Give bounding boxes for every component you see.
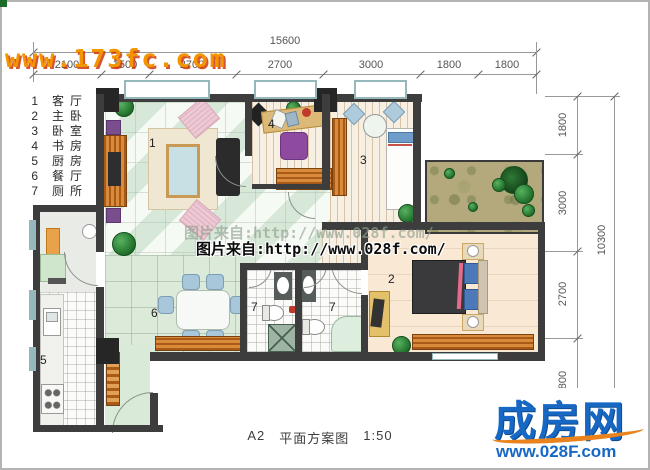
- logo-site: www.028F.com: [496, 442, 616, 462]
- wall-study-bottom: [252, 184, 330, 189]
- ceiling-fan: [82, 224, 97, 239]
- dining-chair: [158, 296, 174, 314]
- dining-chair: [206, 274, 224, 290]
- legend-label: 餐厅: [52, 169, 88, 184]
- room-label-master: 2: [388, 272, 395, 286]
- legend-row: 7厕所: [28, 184, 88, 199]
- room-label-kitchen: 5: [40, 353, 47, 367]
- study-chair: [280, 132, 308, 160]
- bedroom2-blanket-line: [388, 144, 412, 146]
- room-label-living: 1: [149, 136, 156, 150]
- dim-top-seg-3: 2700: [258, 59, 302, 71]
- plant-living-2: [112, 232, 136, 256]
- kitchen-sink-basin: [46, 312, 58, 322]
- terrace-plant-3: [492, 178, 506, 192]
- room-label-dining: 6: [151, 306, 158, 320]
- coffee-table: [166, 144, 200, 198]
- wall-bath-divider: [295, 263, 302, 359]
- legend-num: 2: [28, 109, 38, 124]
- wall-entry-stub: [150, 393, 158, 432]
- toilet-left-tank: [262, 305, 270, 321]
- room-label-study: 4: [268, 117, 275, 131]
- room-label-bath-right: 7: [329, 300, 336, 314]
- bedroom2-pillow: [388, 132, 414, 143]
- legend-label: 卧室: [52, 124, 88, 139]
- wall-bedroom2-left: [322, 94, 330, 190]
- legend-num: 7: [28, 184, 38, 199]
- legend-label: 书房: [52, 139, 88, 154]
- logo: 成房网 www.028F.com: [492, 388, 648, 466]
- dim-top-seg-line: [33, 74, 537, 75]
- drawing-code: A2: [247, 428, 265, 447]
- lamp-1: [467, 245, 479, 257]
- speaker-bottom: [106, 208, 121, 223]
- window-kitchen-1: [29, 290, 36, 320]
- legend-label: 主卧: [52, 109, 88, 124]
- utility-shelf: [48, 278, 66, 284]
- dim-top-seg-6: 1800: [485, 59, 529, 71]
- legend-label: 客厅: [52, 94, 88, 109]
- dining-table: [176, 290, 230, 330]
- legend-row: 2主卧: [28, 109, 88, 124]
- legend-row: 6餐厅: [28, 169, 88, 184]
- legend-num: 1: [28, 94, 38, 109]
- room-label-bath-left: 7: [251, 300, 258, 314]
- dining-chair: [182, 274, 200, 290]
- wall-master-left-b: [361, 295, 368, 355]
- utility-mat: [46, 228, 60, 256]
- window-utility: [29, 220, 36, 250]
- wall-master-right: [538, 222, 545, 361]
- wall-kitchen-right-a: [96, 205, 104, 252]
- window-kitchen-2: [29, 347, 36, 371]
- master-dresser: [412, 334, 534, 350]
- legend-row: 3卧室: [28, 124, 88, 139]
- legend-num: 5: [28, 154, 38, 169]
- lamp-2: [467, 316, 479, 328]
- sideboard: [155, 336, 243, 351]
- dim-right-seg-1: 3000: [557, 181, 569, 225]
- bedroom2-table: [363, 114, 387, 138]
- dim-top-seg-5: 1800: [427, 59, 471, 71]
- ext-line: [536, 42, 537, 94]
- dim-right-total-line: [614, 96, 615, 422]
- legend-row: 4书房: [28, 139, 88, 154]
- toilet-right-tank: [302, 319, 310, 335]
- desk-pot: [302, 108, 311, 117]
- legend-label: 厕所: [52, 184, 88, 199]
- room-label-bedroom2: 3: [360, 153, 367, 167]
- wall-bath-top: [240, 263, 368, 270]
- legend-num: 3: [28, 124, 38, 139]
- master-pillow-2: [464, 289, 479, 310]
- bathtub: [331, 316, 363, 352]
- dim-right-seg-line: [577, 96, 578, 422]
- bay-window-living: [124, 80, 210, 99]
- ext-line: [545, 96, 620, 97]
- legend-num: 4: [28, 139, 38, 154]
- terrace-plant-5: [468, 202, 478, 212]
- bay-window-bedroom2: [354, 80, 407, 99]
- bay-window-study: [254, 80, 317, 99]
- wall-study-left: [245, 94, 252, 156]
- legend-label: 厨房: [52, 154, 88, 169]
- master-headboard: [478, 260, 488, 314]
- column: [96, 338, 119, 364]
- legend-row: 1客厅: [28, 94, 88, 109]
- wall-kitchen-right-c: [96, 364, 104, 432]
- watermark-site: www.173fc.com: [5, 44, 227, 73]
- master-pillow-1: [464, 263, 479, 284]
- drawing-name: 平面方案图: [279, 428, 349, 447]
- legend-num: 6: [28, 169, 38, 184]
- corner-artifact: [0, 0, 7, 7]
- dim-right-seg-2: 2700: [557, 272, 569, 316]
- window-master: [432, 353, 498, 360]
- stove: [41, 384, 64, 414]
- drawing-title: A2 平面方案图 1:50: [195, 428, 445, 447]
- dim-right-total: 10300: [596, 218, 608, 262]
- tv: [108, 152, 121, 186]
- wall-utility-top: [33, 205, 104, 212]
- wall-bath-left: [240, 263, 247, 359]
- wall-bedroom2-right: [413, 94, 421, 230]
- legend-row: 5厨房: [28, 154, 88, 169]
- dim-top-total: 15600: [255, 35, 315, 47]
- sink-left: [277, 277, 289, 294]
- terrace-plant-2: [514, 184, 534, 204]
- wall-kitchen-right-b: [96, 287, 104, 338]
- speaker-top: [106, 120, 121, 135]
- dim-top-seg-4: 3000: [349, 59, 393, 71]
- terrace-plant-6: [522, 204, 535, 217]
- wall-left-upper: [96, 94, 104, 212]
- dim-right-seg-0: 1800: [557, 103, 569, 147]
- legend: 1客厅 2主卧 3卧室 4书房 5厨房 6餐厅 7厕所: [28, 94, 88, 199]
- watermark-source: 图片来自:http://www.028f.com/: [196, 238, 446, 259]
- terrace-plant-4: [444, 168, 455, 179]
- shower-left: [268, 324, 296, 352]
- floorplan-image: 15600 2100 1500 2700 2700 3000 1800 1800…: [0, 0, 650, 470]
- drawing-scale: 1:50: [363, 428, 392, 447]
- bedroom2-wardrobe: [332, 118, 347, 196]
